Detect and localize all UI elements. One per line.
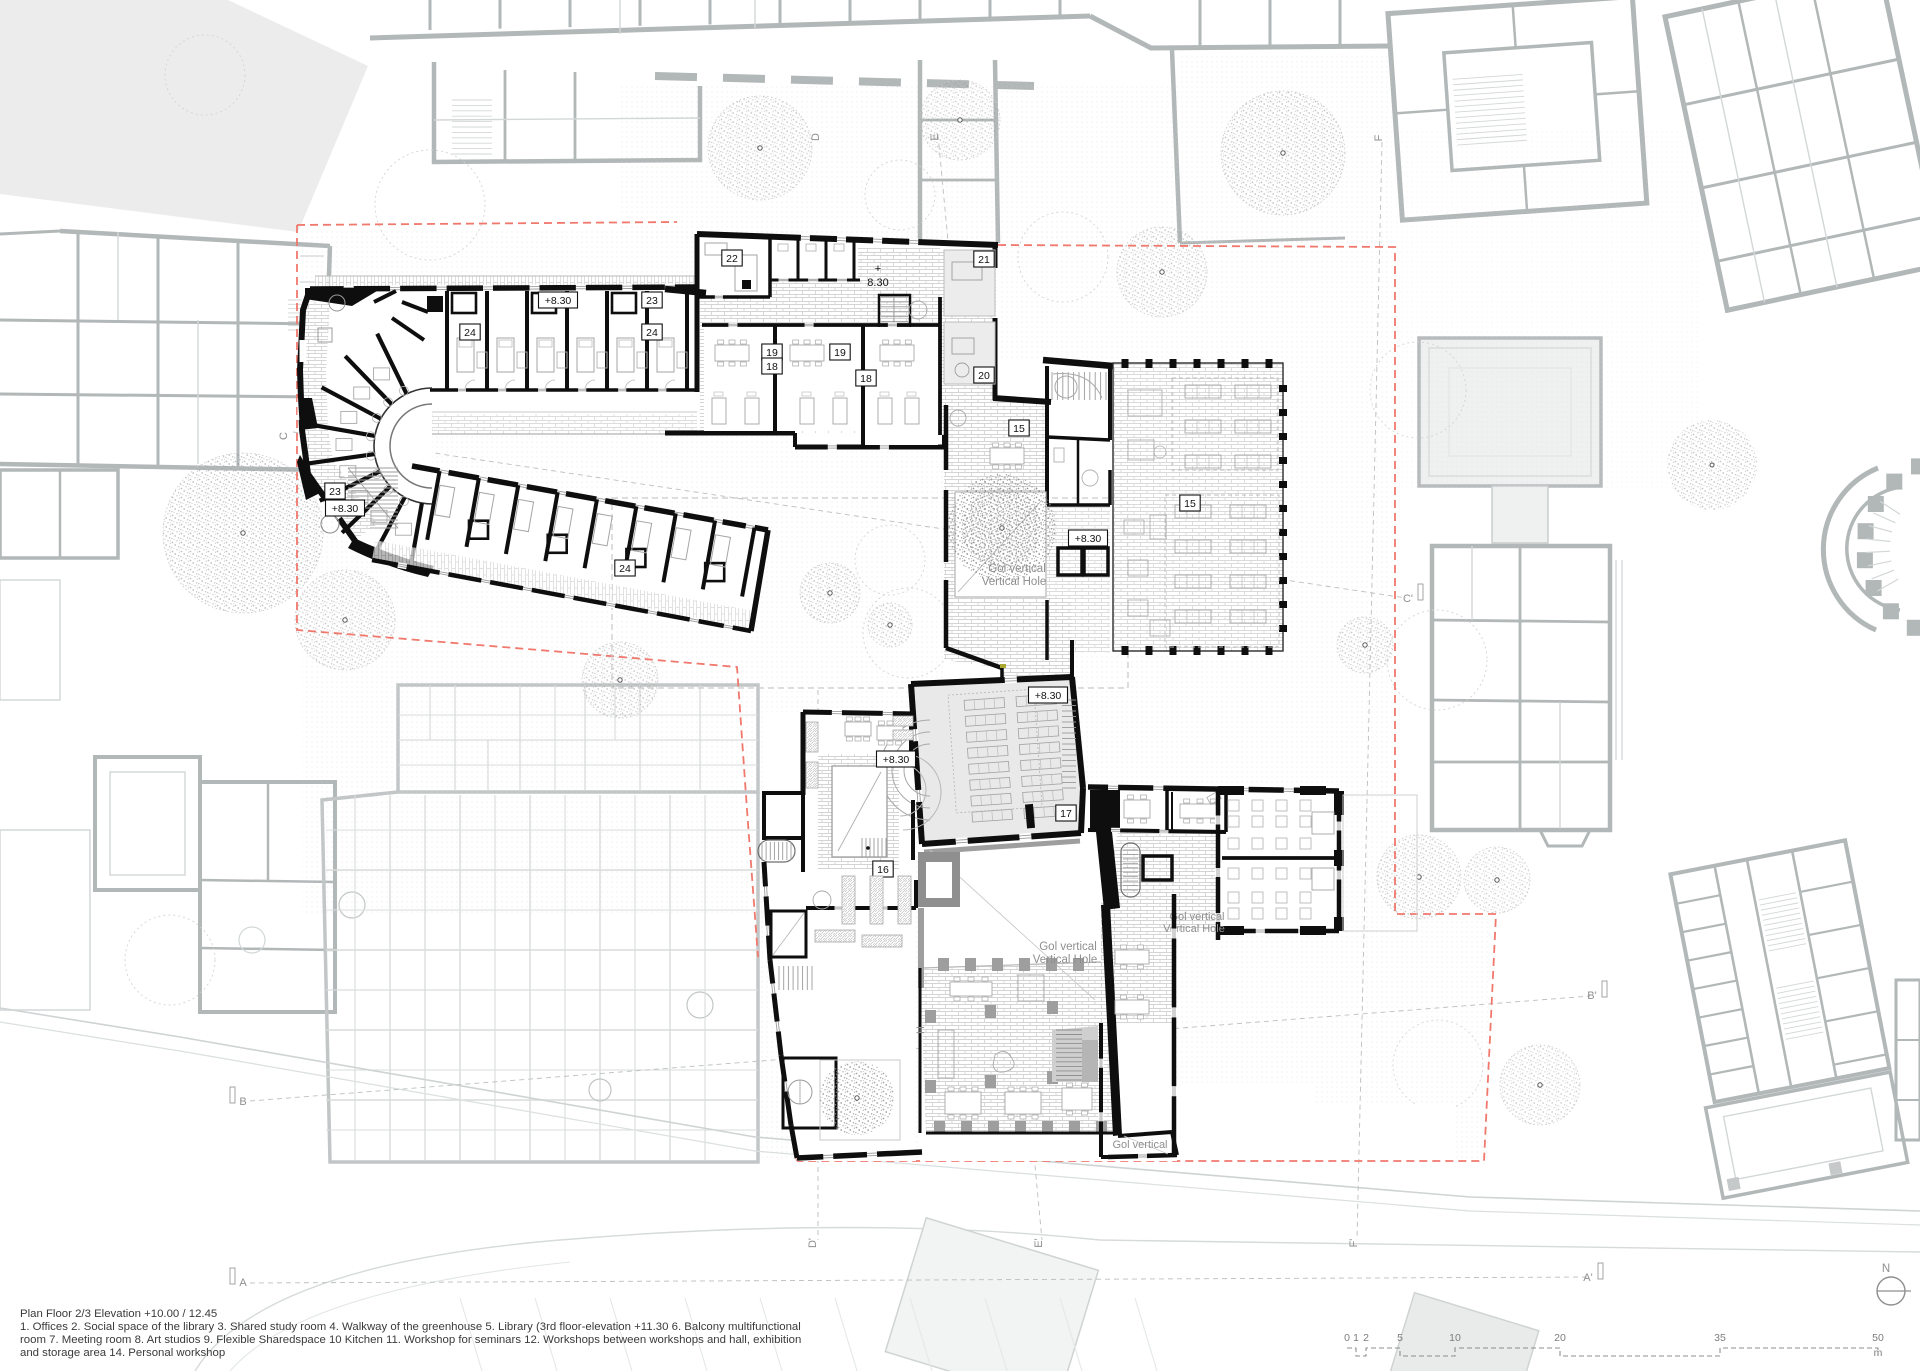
svg-text:+8.30: +8.30 — [545, 295, 572, 307]
svg-text:20: 20 — [1554, 1332, 1566, 1344]
svg-text:8.30: 8.30 — [867, 277, 888, 289]
svg-text:A': A' — [1583, 1272, 1592, 1284]
svg-text:D: D — [810, 133, 822, 141]
svg-text:16: 16 — [877, 864, 889, 876]
svg-text:10: 10 — [1449, 1332, 1461, 1344]
svg-text:F': F' — [1348, 1239, 1360, 1248]
svg-text:N: N — [1882, 1263, 1890, 1275]
svg-text:21: 21 — [978, 254, 990, 266]
svg-text:B: B — [239, 1096, 246, 1108]
svg-text:19: 19 — [766, 347, 778, 359]
svg-text:23: 23 — [646, 295, 658, 307]
svg-text:17: 17 — [1060, 808, 1072, 820]
svg-text:35: 35 — [1714, 1332, 1726, 1344]
svg-text:m: m — [1874, 1347, 1883, 1359]
svg-text:1: 1 — [1353, 1332, 1359, 1344]
svg-text:Plan Floor 2/3 Elevation +10.0: Plan Floor 2/3 Elevation +10.00 / 12.45 — [20, 1308, 217, 1320]
svg-text:+: + — [875, 263, 881, 275]
svg-text:Gol vertical: Gol vertical — [1112, 1139, 1167, 1151]
svg-text:E': E' — [1033, 1238, 1045, 1247]
svg-text:24: 24 — [646, 327, 658, 339]
svg-text:Gol vertical: Gol vertical — [1039, 941, 1097, 953]
svg-text:F: F — [1373, 134, 1385, 141]
svg-text:5: 5 — [1397, 1332, 1403, 1344]
svg-text:24: 24 — [464, 327, 476, 339]
svg-text:C: C — [278, 432, 290, 440]
svg-text:0: 0 — [1344, 1332, 1350, 1344]
svg-text:B': B' — [1587, 990, 1596, 1002]
svg-text:A: A — [239, 1277, 247, 1289]
svg-text:20: 20 — [978, 370, 990, 382]
svg-text:15: 15 — [1184, 498, 1196, 510]
svg-text:19: 19 — [834, 347, 846, 359]
svg-text:24: 24 — [619, 563, 631, 575]
svg-text:and storage area 14. Personal: and storage area 14. Personal workshop — [20, 1347, 225, 1359]
svg-text:1. Offices 2. Social space of: 1. Offices 2. Social space of the librar… — [20, 1321, 801, 1333]
svg-text:D': D' — [807, 1238, 819, 1248]
svg-text:Gol vertical: Gol vertical — [988, 563, 1046, 575]
svg-text:E: E — [929, 133, 941, 140]
svg-text:+8.30: +8.30 — [1075, 533, 1102, 545]
svg-text:+8.30: +8.30 — [332, 503, 359, 515]
svg-text:Vertical Hole: Vertical Hole — [1033, 954, 1098, 966]
svg-text:22: 22 — [726, 253, 738, 265]
svg-text:C': C' — [1403, 593, 1413, 605]
svg-text:15: 15 — [1013, 423, 1025, 435]
svg-text:Vertical Hole: Vertical Hole — [982, 576, 1047, 588]
svg-text:room 7. Meeting room 8. Art st: room 7. Meeting room 8. Art studios 9. F… — [20, 1334, 801, 1346]
svg-text:18: 18 — [766, 361, 778, 373]
svg-text:H: H — [915, 1026, 927, 1034]
svg-text:23: 23 — [329, 486, 341, 498]
svg-text:+8.30: +8.30 — [1035, 690, 1062, 702]
svg-text:Gol vertical: Gol vertical — [1169, 911, 1224, 923]
svg-text:50: 50 — [1872, 1332, 1884, 1344]
svg-text:18: 18 — [860, 373, 872, 385]
svg-text:+8.30: +8.30 — [883, 754, 910, 766]
svg-text:2: 2 — [1363, 1332, 1369, 1344]
